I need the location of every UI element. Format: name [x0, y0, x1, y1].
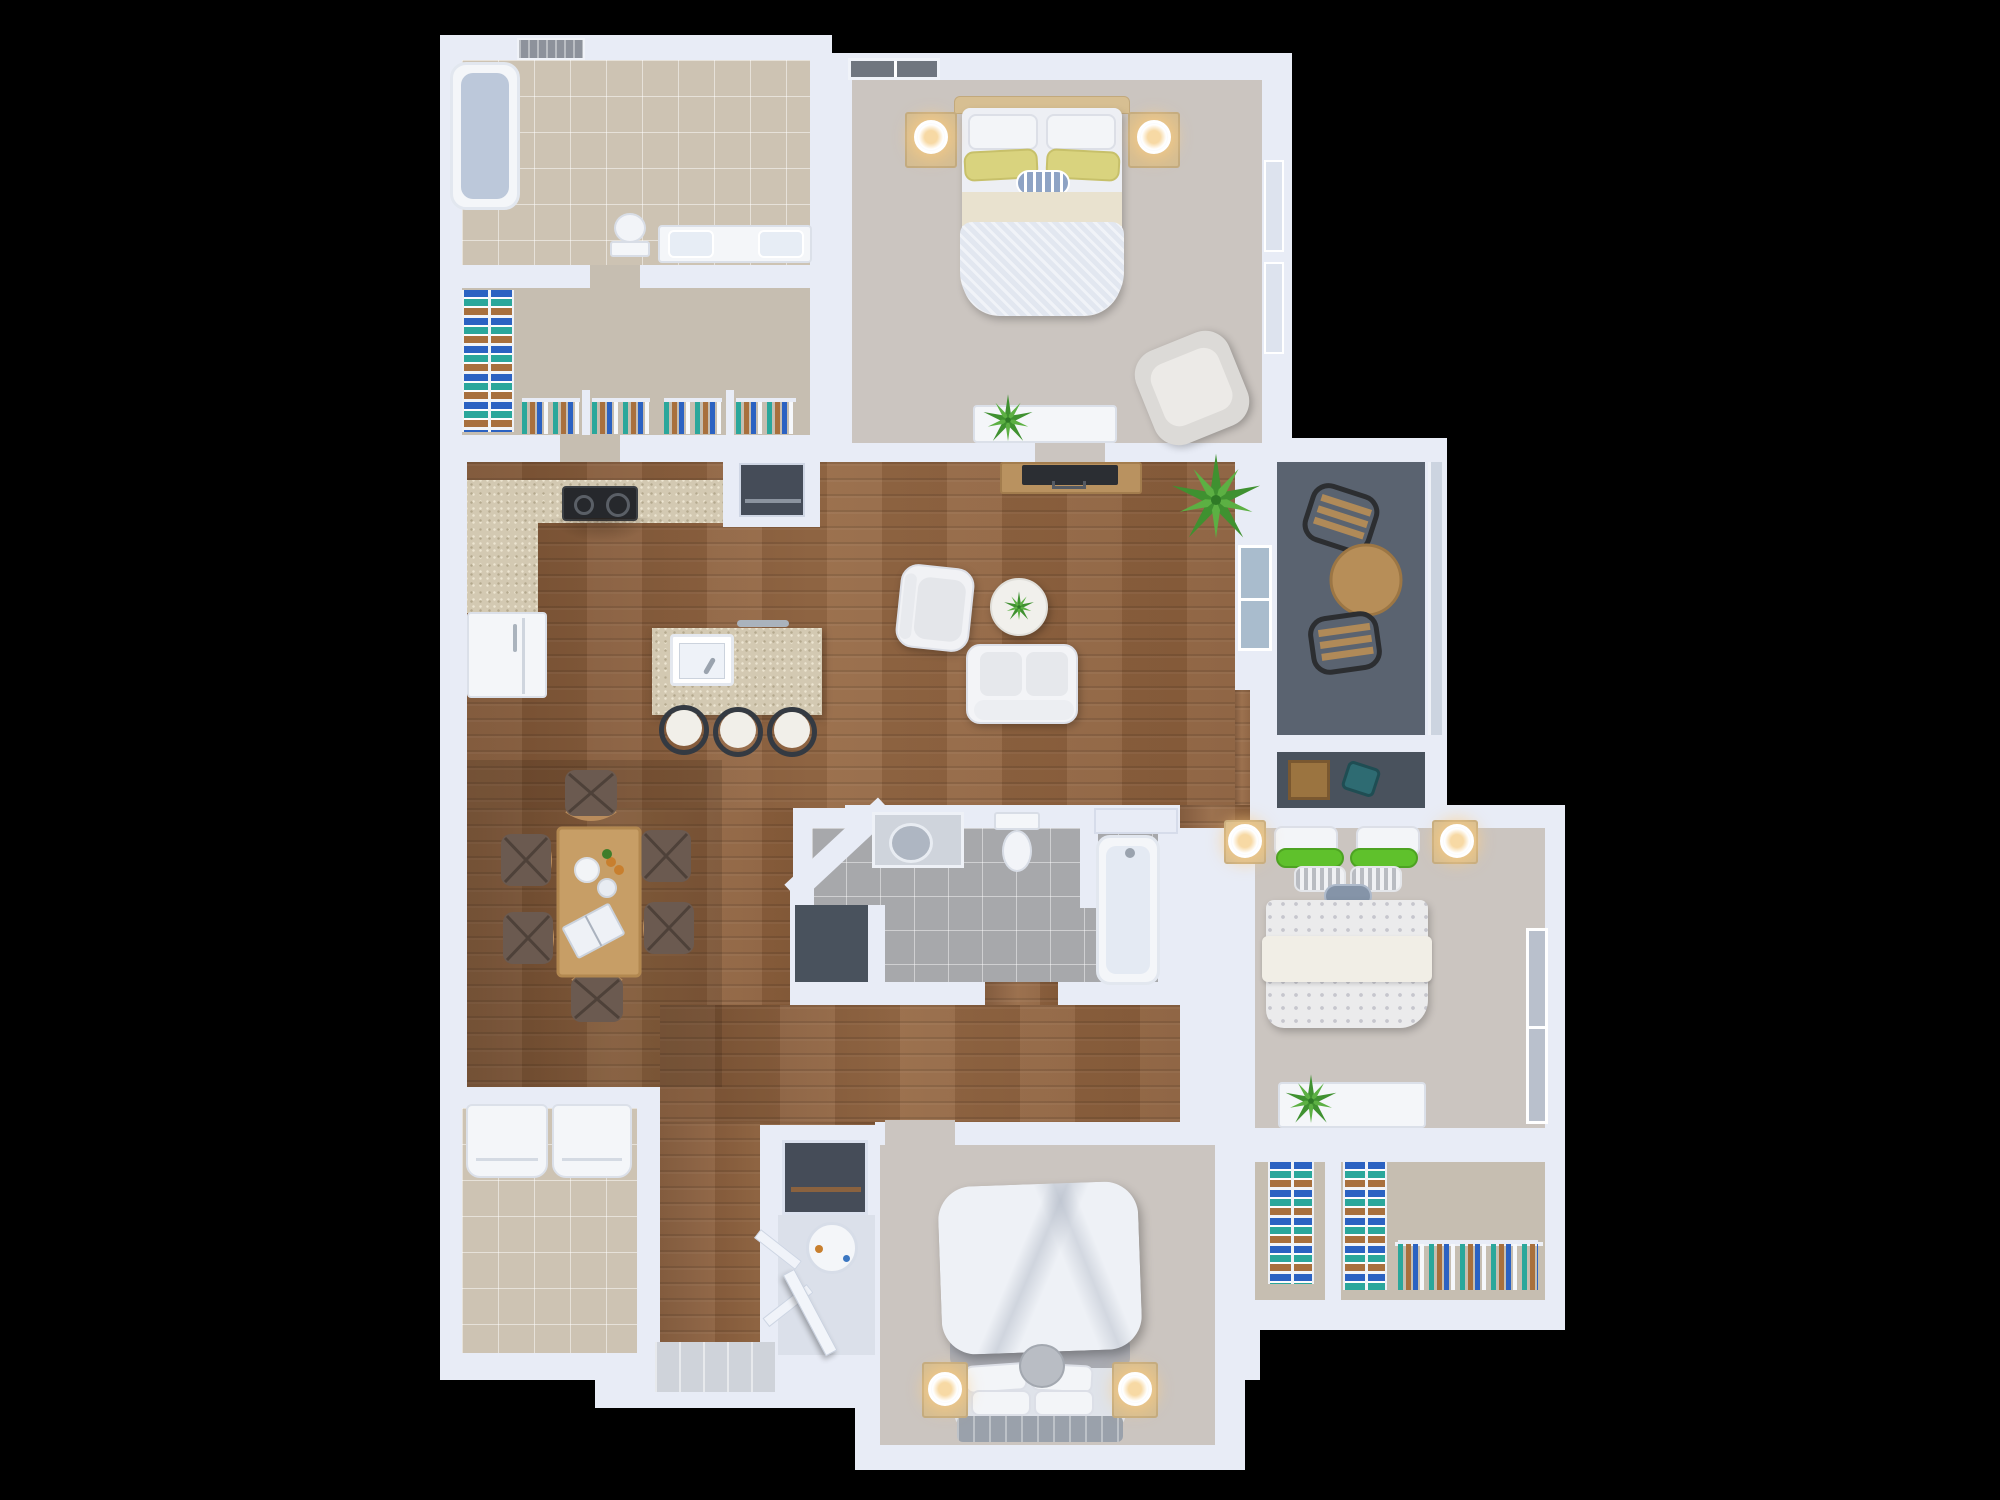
- right-duvet-sash: [1262, 936, 1432, 982]
- dryer-lid-line: [562, 1158, 622, 1161]
- hall-bathroom-door-threshold: [985, 982, 1058, 1005]
- closet-hanging-rack-2: [592, 398, 650, 434]
- bottom-lamp-left: [928, 1372, 962, 1406]
- tub-niche-shelf: [1094, 808, 1178, 834]
- utility-niche-dark: [782, 1140, 868, 1215]
- bathroom-closet-door-gap: [590, 265, 640, 288]
- console-plant: [980, 392, 1036, 448]
- window-mullion: [1529, 1026, 1545, 1029]
- water-heater: [806, 1222, 858, 1274]
- right-closet-hanging: [1398, 1240, 1538, 1290]
- duvet: [960, 222, 1124, 316]
- barstool-seat: [666, 710, 702, 746]
- bottom-pillow-3: [971, 1390, 1031, 1416]
- kitchen-counter-left: [467, 480, 538, 613]
- floor-plan: [0, 0, 2000, 1500]
- stack-divider: [1291, 1162, 1294, 1284]
- hall-toilet: [994, 812, 1040, 878]
- fruit-2: [614, 865, 624, 875]
- hall-sink-round: [889, 823, 933, 863]
- entry-landing: [655, 1342, 775, 1392]
- balcony-table: [1331, 545, 1401, 615]
- dining-chair-right-2: [644, 902, 694, 954]
- pillow-green-right: [1350, 848, 1418, 868]
- master-bedroom-door-gap: [1035, 443, 1105, 462]
- sink-basin: [679, 643, 725, 679]
- right-closet-divider: [1325, 1150, 1341, 1300]
- master-bedroom-window-top: [848, 58, 940, 80]
- washer: [466, 1104, 548, 1178]
- hall-floor-right: [1235, 690, 1250, 808]
- bottom-round-pillow: [1019, 1344, 1065, 1388]
- bottom-pillow-4: [1034, 1390, 1094, 1416]
- refrigerator: [467, 612, 547, 698]
- balcony-sliding-door: [1238, 545, 1272, 651]
- bottom-lamp-right: [1118, 1372, 1152, 1406]
- right-bed: [1266, 824, 1428, 1029]
- closet-hanging-rack-3: [664, 398, 722, 434]
- master-bed: [960, 96, 1124, 318]
- burner-left: [574, 495, 594, 515]
- right-lamp-left: [1228, 824, 1262, 858]
- right-bedroom-window: [1526, 928, 1548, 1124]
- barstool-1: [659, 705, 709, 755]
- right-dresser-plant: [1282, 1072, 1340, 1130]
- hall-toilet-bowl: [1002, 830, 1032, 872]
- tv-stand-bar: [1052, 481, 1086, 489]
- cooktop-shadow: [552, 518, 652, 542]
- bottom-duvet-puffy: [937, 1181, 1143, 1356]
- pillow-white-left: [968, 114, 1038, 150]
- pillow-green-left: [1276, 848, 1344, 868]
- washer-lid-line: [476, 1158, 538, 1161]
- hall-toilet-tank: [994, 812, 1040, 830]
- armchair-cushion: [913, 576, 967, 643]
- plate-small: [598, 879, 616, 897]
- hall-bathroom-wall-bottom-left: [790, 982, 985, 1005]
- living-plant-tall: [1168, 452, 1264, 548]
- blanket-cream-band: [962, 192, 1122, 226]
- master-bedroom-window-right-2: [1264, 262, 1284, 354]
- island-sink: [670, 634, 734, 686]
- dining-set: [495, 762, 710, 1042]
- lamp-left: [914, 120, 948, 154]
- heater-valve-2: [843, 1255, 850, 1262]
- bathtub-basin: [461, 73, 509, 199]
- hall-vanity: [872, 812, 964, 868]
- dining-chair-left-1: [501, 834, 551, 886]
- toilet-bowl: [614, 213, 646, 243]
- balcony-furniture: [1290, 478, 1415, 693]
- dryer: [552, 1104, 632, 1178]
- dining-chair-left-2: [503, 912, 553, 964]
- right-closet-stack-1: [1268, 1162, 1314, 1284]
- dining-chair-bottom: [571, 974, 623, 1022]
- plate-large: [575, 858, 599, 882]
- hall-floor-lower: [660, 1005, 1180, 1122]
- pantry-shelf: [745, 499, 801, 503]
- dining-chair-top: [565, 770, 617, 818]
- toilet: [610, 213, 650, 259]
- burner-right: [606, 493, 630, 517]
- toilet-tank: [610, 241, 650, 257]
- lamp-right: [1137, 120, 1171, 154]
- hall-tub-basin: [1106, 846, 1150, 974]
- fridge-door-split: [522, 618, 525, 694]
- vanity-sink-left: [668, 230, 714, 258]
- hall-tub-faucet: [1125, 848, 1135, 858]
- hall-closet-dark: [795, 905, 868, 982]
- storage-crate: [1288, 760, 1330, 800]
- barstool-seat: [774, 712, 810, 748]
- shelf-tower-divider: [488, 290, 491, 432]
- dining-table: [558, 828, 640, 976]
- closet-partition-1: [582, 390, 590, 435]
- closet-hanging-rack-4: [736, 398, 796, 434]
- closet-shelf-tower: [462, 290, 514, 432]
- loveseat-back: [974, 700, 1074, 720]
- master-bedroom-window-right-1: [1264, 160, 1284, 252]
- bottom-bedroom-door-gap: [885, 1120, 955, 1145]
- utility-niche-shelf: [791, 1187, 861, 1192]
- greens: [602, 849, 612, 859]
- loveseat: [966, 644, 1078, 724]
- bathroom-closet-wall-left: [440, 265, 590, 288]
- barstool-3: [767, 707, 817, 757]
- tv-flat: [1022, 465, 1118, 485]
- hall-bathtub: [1096, 835, 1160, 985]
- pillow-white-right: [1046, 114, 1116, 150]
- loveseat-cushion-right: [1026, 652, 1068, 696]
- hall-closet-wall-right: [868, 905, 885, 1005]
- closet-kitchen-door-gap: [560, 435, 620, 462]
- ceiling-vent: [517, 38, 585, 60]
- bottom-headboard: [957, 1416, 1123, 1442]
- bathtub: [450, 62, 520, 210]
- hall-bathroom-wall-right: [1158, 805, 1180, 1005]
- vanity-sink-right: [758, 230, 804, 258]
- stack-divider: [1365, 1162, 1368, 1290]
- fridge-handle: [513, 624, 517, 652]
- balcony-railing: [1428, 462, 1442, 735]
- cooktop: [562, 486, 638, 521]
- dishwasher-handle: [737, 620, 789, 627]
- sliding-door-rail: [1241, 598, 1269, 601]
- loveseat-cushion-left: [980, 652, 1022, 696]
- living-armchair: [894, 562, 976, 653]
- heater-valve-1: [815, 1245, 823, 1253]
- pantry-interior: [739, 463, 805, 517]
- right-lamp-right: [1440, 824, 1474, 858]
- coffee-table-plant: [1002, 590, 1036, 624]
- right-closet-stack-2: [1343, 1162, 1387, 1290]
- bathroom-closet-wall-right: [640, 265, 832, 288]
- dining-chair-right-1: [641, 830, 691, 882]
- window-mullion: [894, 61, 897, 77]
- closet-hanging-rack-1: [522, 398, 580, 434]
- closet-partition-2: [726, 390, 734, 435]
- barstool-seat: [720, 712, 756, 748]
- barstool-2: [713, 707, 763, 757]
- balcony-chair-2: [1309, 612, 1382, 675]
- armchair-cushion: [1146, 343, 1237, 431]
